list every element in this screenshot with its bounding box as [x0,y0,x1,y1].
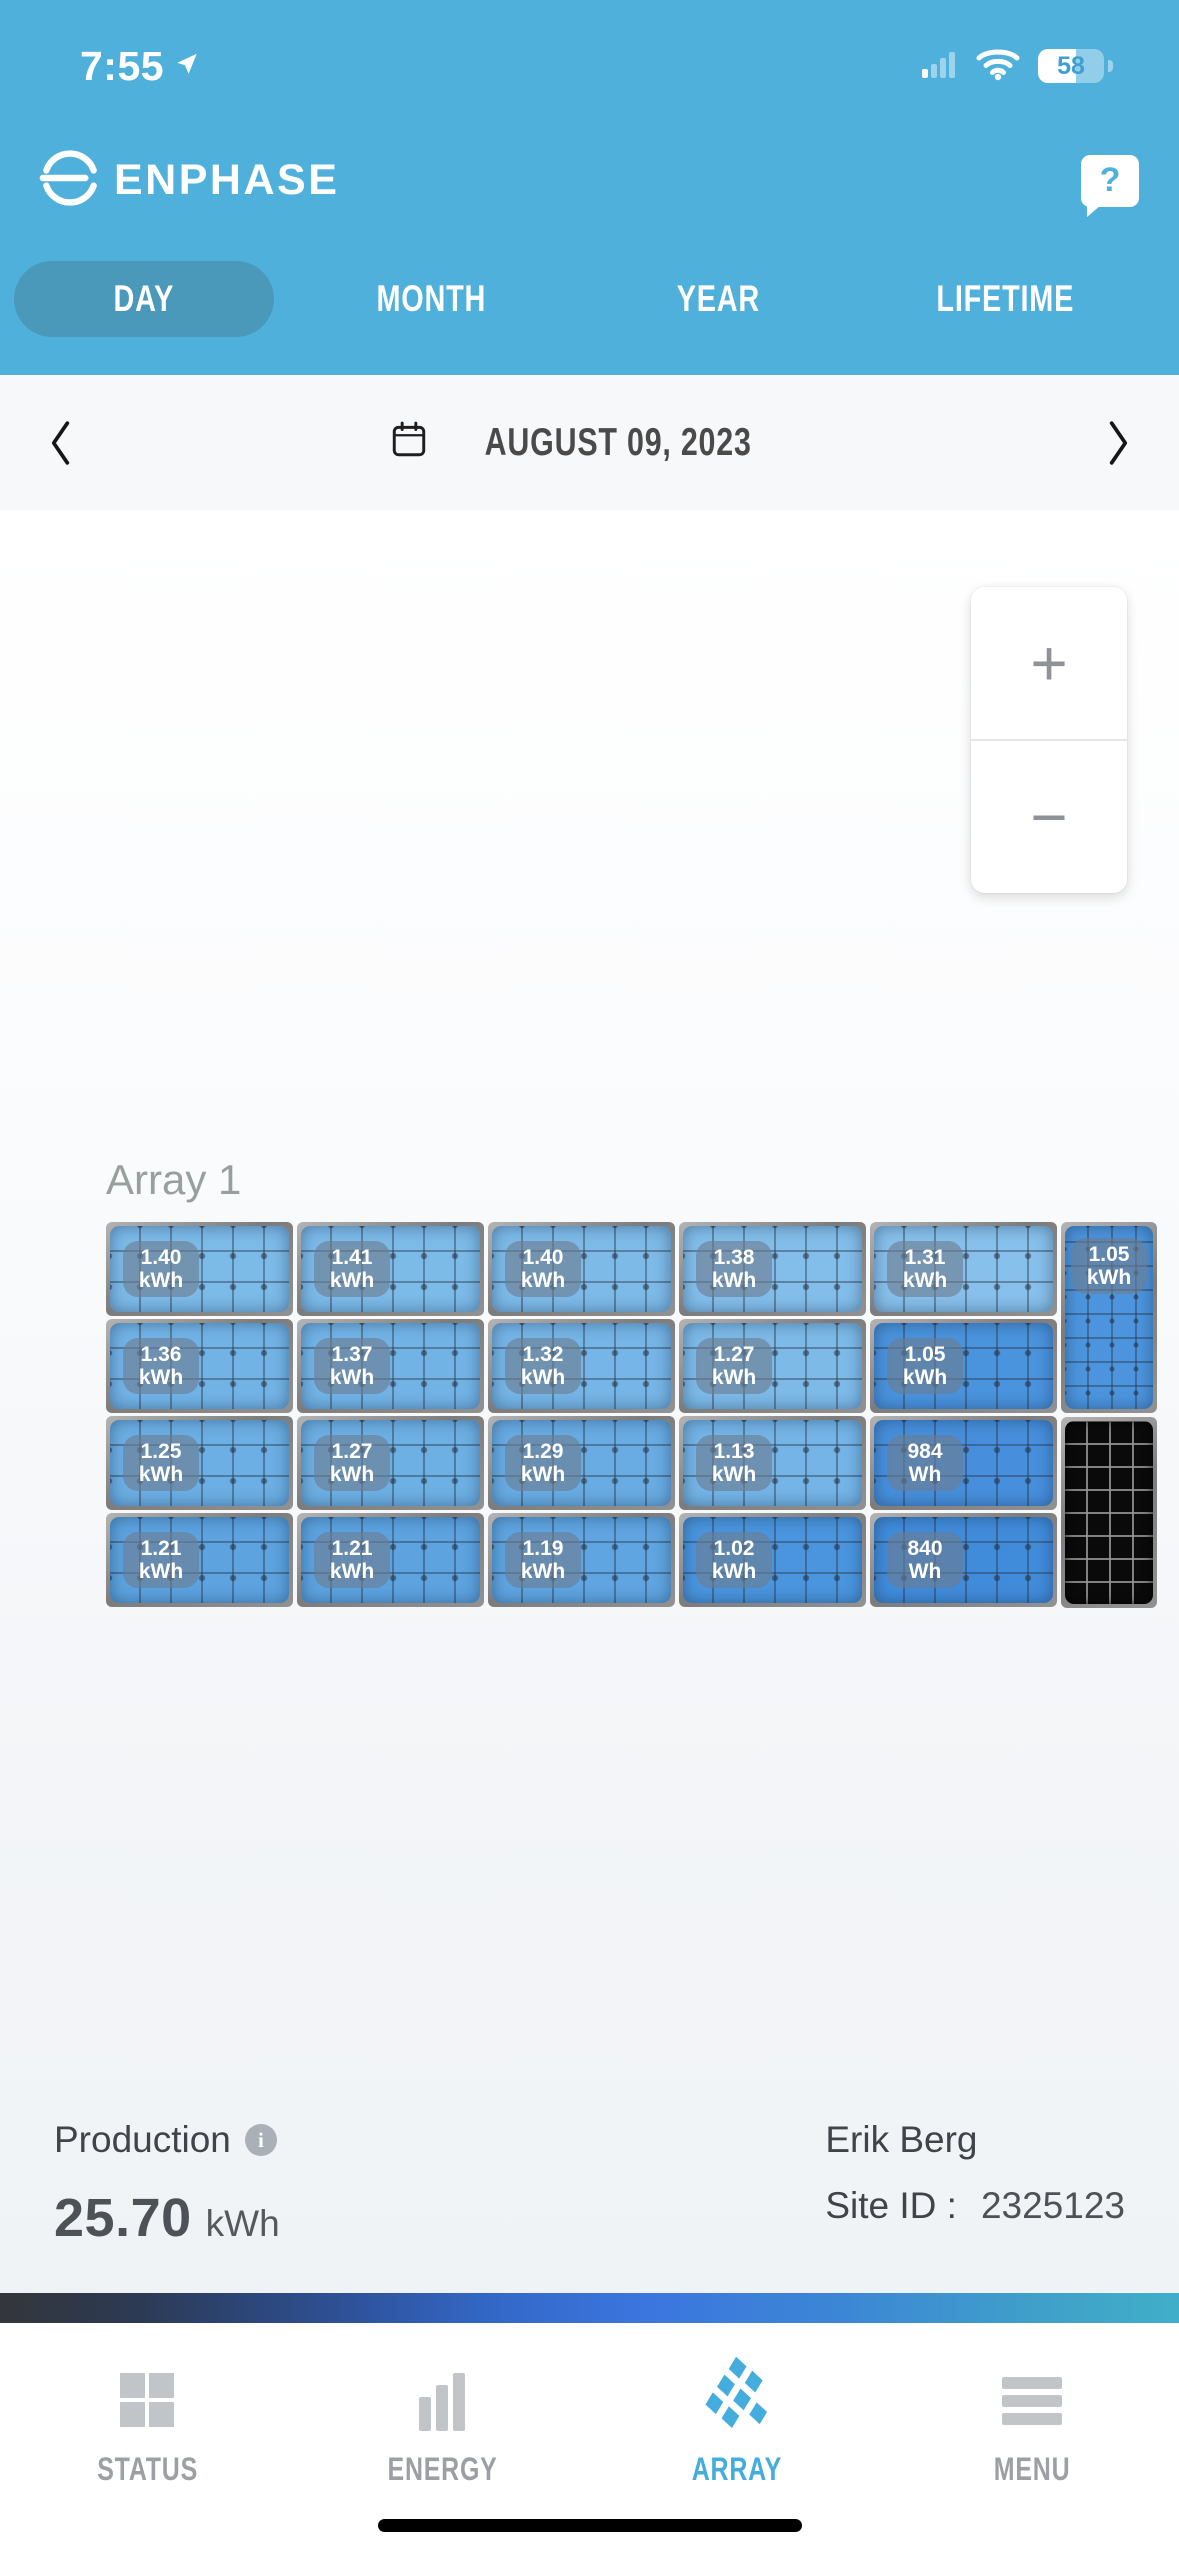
map-zoom-control: + − [971,587,1127,893]
solar-panel[interactable]: 1.40kWh [106,1222,293,1316]
next-day-button[interactable] [1059,419,1179,467]
panel-energy-badge: 1.19kWh [505,1532,581,1588]
decorative-gradient-bar [0,2293,1179,2323]
solar-panel[interactable]: 1.27kWh [297,1416,484,1510]
help-button[interactable]: ? [1081,155,1139,207]
summary-bar: Production i 25.70 kWh Erik Berg Site ID… [0,2027,1179,2293]
solar-panel[interactable]: 840Wh [870,1513,1057,1607]
panel-energy-badge: 1.29kWh [505,1435,581,1491]
panel-energy-badge: 1.38kWh [696,1241,772,1297]
production-value: 25.70 [54,2187,192,2249]
panel-energy-badge: 1.25kWh [123,1435,199,1491]
menu-lines-icon [1000,2363,1064,2431]
period-tabs: DAY MONTH YEAR LIFETIME [0,254,1149,344]
solar-panel[interactable]: 1.21kWh [297,1513,484,1607]
tab-year[interactable]: YEAR [575,254,862,344]
solar-panel[interactable]: 1.21kWh [106,1513,293,1607]
date-picker-button[interactable]: AUGUST 09, 2023 [120,420,1059,465]
panel-energy-badge: 1.40kWh [505,1241,581,1297]
previous-day-button[interactable] [0,419,120,467]
solar-panel[interactable]: 1.05kWh [1061,1222,1157,1413]
nav-menu[interactable]: MENU [884,2363,1179,2556]
panel-energy-badge: 984Wh [887,1435,963,1491]
enphase-logo-icon [38,146,102,215]
tab-lifetime[interactable]: LIFETIME [862,254,1149,344]
panel-energy-badge: 1.13kWh [696,1435,772,1491]
wifi-icon [976,47,1020,86]
enphase-logo: ENPHASE [38,146,339,215]
battery-icon: 58 [1038,49,1104,83]
site-id-label: Site ID : [825,2185,957,2227]
energy-bars-icon [411,2363,473,2431]
panel-energy-badge: 1.37kWh [314,1338,390,1394]
info-icon[interactable]: i [245,2124,277,2156]
app-screen: 7:55 [0,0,1179,2556]
current-date: AUGUST 09, 2023 [485,421,752,465]
solar-panel[interactable]: 1.40kWh [488,1222,675,1316]
site-id-value: 2325123 [981,2185,1125,2227]
solar-panel[interactable]: 1.05kWh [870,1319,1057,1413]
zoom-out-button[interactable]: − [971,741,1127,893]
solar-panel-grid: 1.40kWh1.41kWh1.40kWh1.38kWh1.31kWh1.36k… [106,1222,1157,1608]
panel-energy-badge: 1.31kWh [887,1241,963,1297]
solar-panel[interactable]: 1.36kWh [106,1319,293,1413]
panel-energy-badge: 1.41kWh [314,1241,390,1297]
nav-status[interactable]: STATUS [0,2363,295,2556]
array-1-section: Array 1 1.40kWh1.41kWh1.40kWh1.38kWh1.31… [106,1156,1157,1608]
solar-panel[interactable]: 1.13kWh [679,1416,866,1510]
battery-nub [1108,60,1113,72]
tab-month[interactable]: MONTH [287,254,574,344]
array-title: Array 1 [106,1156,1157,1204]
solar-panel[interactable]: 1.32kWh [488,1319,675,1413]
calendar-icon [389,420,429,465]
panel-energy-badge: 1.21kWh [123,1532,199,1588]
solar-panel[interactable]: 1.37kWh [297,1319,484,1413]
panel-energy-badge: 1.27kWh [696,1338,772,1394]
owner-name: Erik Berg [825,2119,1125,2161]
zoom-in-button[interactable]: + [971,587,1127,739]
status-time: 7:55 [80,43,164,90]
tab-day[interactable]: DAY [0,254,287,344]
array-map: + − Array 1 1.40kWh1.41kWh1.40kWh1.38kWh… [0,510,1179,2293]
production-unit: kWh [206,2203,280,2245]
solar-panel[interactable]: 1.38kWh [679,1222,866,1316]
panel-energy-badge: 1.27kWh [314,1435,390,1491]
solar-panel[interactable]: 1.19kWh [488,1513,675,1607]
panel-energy-badge: 1.36kWh [123,1338,199,1394]
solar-panel[interactable] [1061,1417,1157,1608]
production-label: Production [54,2119,231,2161]
solar-panel[interactable]: 1.25kWh [106,1416,293,1510]
solar-panel[interactable]: 1.41kWh [297,1222,484,1316]
panel-energy-badge: 1.05kWh [1071,1238,1147,1294]
home-indicator[interactable] [378,2519,802,2532]
panel-energy-badge: 840Wh [887,1532,963,1588]
panel-energy-badge: 1.40kWh [123,1241,199,1297]
cellular-signal-icon [922,49,958,84]
panel-energy-badge: 1.21kWh [314,1532,390,1588]
solar-panel[interactable]: 1.29kWh [488,1416,675,1510]
brand-name: ENPHASE [114,156,339,205]
solar-panel[interactable]: 1.31kWh [870,1222,1057,1316]
solar-panel[interactable]: 1.27kWh [679,1319,866,1413]
status-grid-icon [116,2363,178,2431]
array-panels-icon [701,2363,773,2431]
solar-panel[interactable]: 1.02kWh [679,1513,866,1607]
location-arrow-icon [174,51,200,82]
status-bar: 7:55 [0,38,1179,94]
panel-energy-badge: 1.02kWh [696,1532,772,1588]
solar-panel[interactable]: 984Wh [870,1416,1057,1510]
date-navigation: AUGUST 09, 2023 [0,375,1179,510]
panel-energy-badge: 1.32kWh [505,1338,581,1394]
panel-energy-badge: 1.05kWh [887,1338,963,1394]
app-header: 7:55 [0,0,1179,375]
